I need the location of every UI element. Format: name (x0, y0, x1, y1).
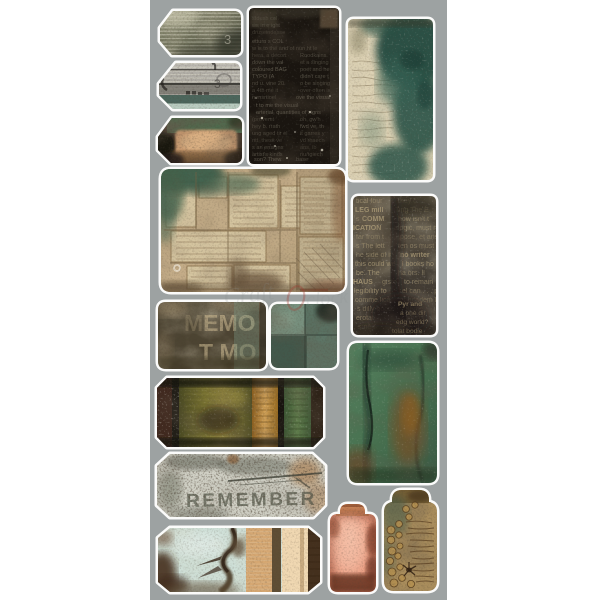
svg-text:clock: clock (305, 285, 350, 311)
svg-text:base: base (296, 157, 308, 163)
svg-text:son? Thew: son? Thew (254, 157, 282, 163)
